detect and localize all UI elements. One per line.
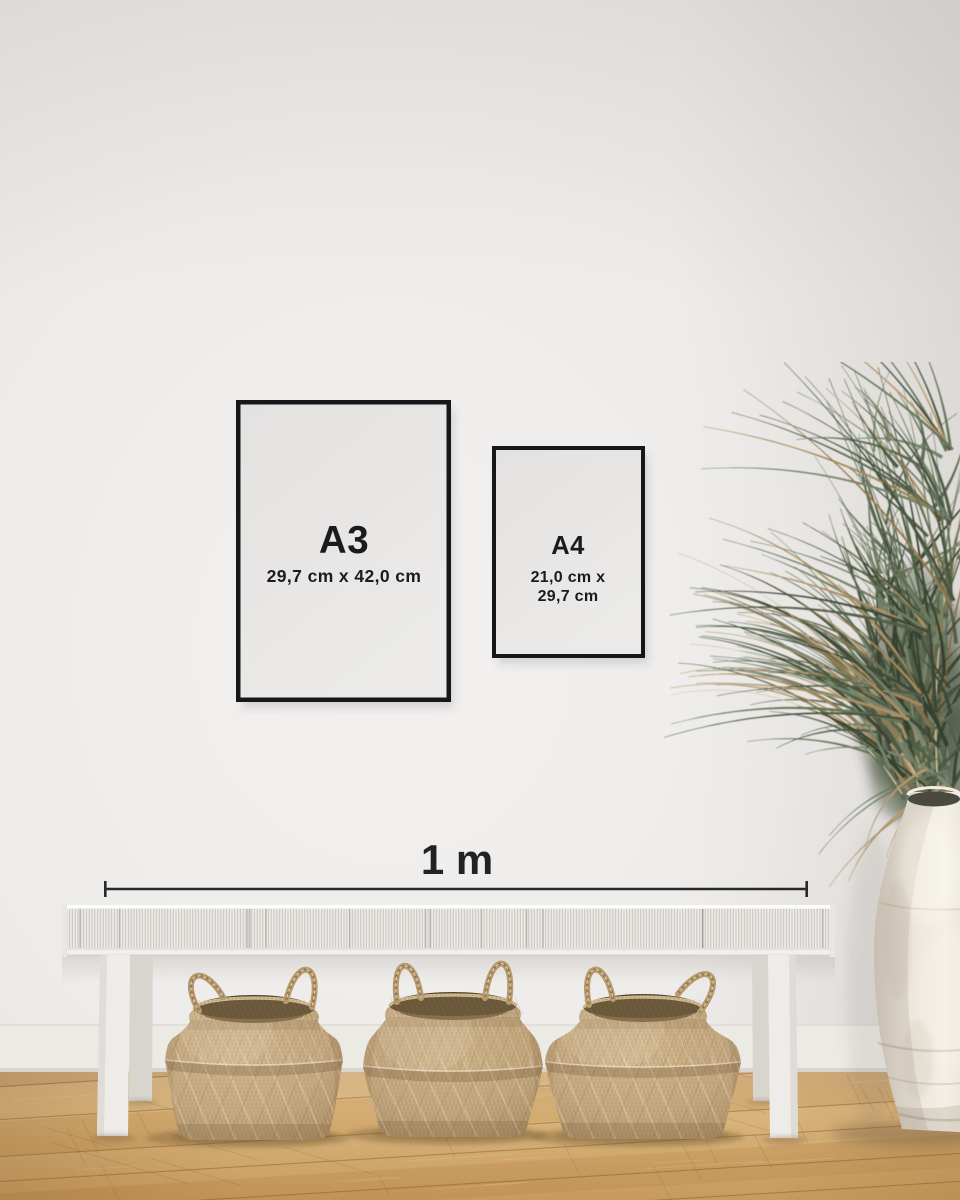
svg-text:1 m: 1 m (421, 836, 493, 883)
svg-text:29,7 cm: 29,7 cm (538, 588, 599, 605)
svg-text:A4: A4 (551, 532, 585, 560)
svg-text:21,0 cm x: 21,0 cm x (531, 569, 606, 586)
svg-text:29,7 cm x 42,0 cm: 29,7 cm x 42,0 cm (267, 566, 422, 586)
svg-text:A3: A3 (319, 519, 369, 562)
